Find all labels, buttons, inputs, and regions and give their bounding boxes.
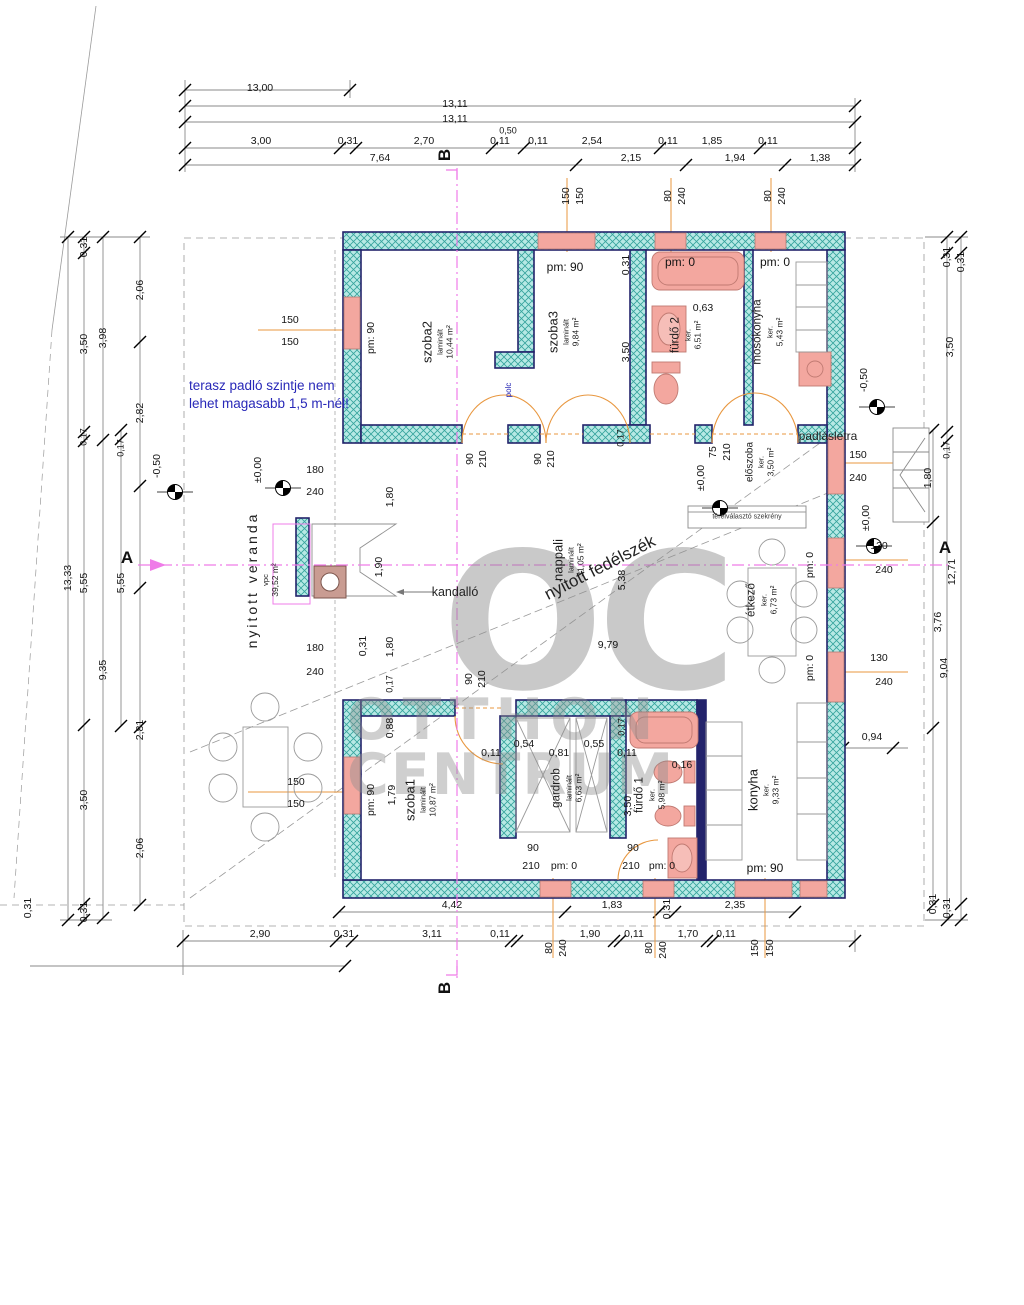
dim-label: 1,85 xyxy=(702,136,722,147)
dim-label: 0,11 xyxy=(624,929,644,940)
dim-label: 5,55 xyxy=(79,573,90,593)
door-label: 90 xyxy=(465,453,476,465)
sill-label: pm: 0 xyxy=(805,552,816,578)
dim-label: 3,00 xyxy=(251,136,271,147)
dim-label: 0,31 xyxy=(79,902,90,922)
dim-label: 0,31 xyxy=(358,636,369,656)
dim-label: 0,17 xyxy=(117,439,126,457)
dim-label: 0,17 xyxy=(80,428,89,446)
dim-label: 2,90 xyxy=(250,929,270,940)
room-label-szoba3: szoba3 laminált 9,84 m² xyxy=(546,311,581,353)
room-label-gardrob: gardrob laminált 6,63 m² xyxy=(551,768,584,808)
room-name: konyha xyxy=(746,769,762,811)
window-label: 150 xyxy=(561,187,572,205)
dim-label: 13,00 xyxy=(247,83,273,94)
room-name: gardrob xyxy=(551,768,565,808)
room-name: fürdő 2 xyxy=(670,317,684,353)
dim-label: 1,70 xyxy=(678,929,698,940)
dim-label: 0,31 xyxy=(334,929,354,940)
floor-plan-page: OC OTTHON CENTRUM terasz padló szintje n… xyxy=(0,0,1024,1305)
room-name: előszoba xyxy=(744,442,756,482)
dim-label: 0,11 xyxy=(617,748,637,759)
room-area: 39,52 m² xyxy=(270,512,280,649)
dim-label: 0,31 xyxy=(621,255,632,275)
bidet-tank xyxy=(684,806,695,826)
dim-label: 2,06 xyxy=(135,280,146,300)
dim-label: ±0,00 xyxy=(861,505,872,531)
dim-label: 13,11 xyxy=(442,114,468,125)
dim-label: 3,76 xyxy=(933,612,944,632)
dim-label: 1,80 xyxy=(385,637,396,657)
room-floor: ker. xyxy=(647,777,656,813)
dim-label: 1,90 xyxy=(580,929,600,940)
room-name: szoba3 xyxy=(546,311,562,353)
window-label: 150 xyxy=(287,799,305,810)
dim-label: 9,79 xyxy=(598,640,618,651)
dim-label: 0,17 xyxy=(618,718,627,736)
room-area: 6,51 m² xyxy=(692,317,702,353)
dim-label: -0,50 xyxy=(859,368,870,392)
dim-label: 1,94 xyxy=(725,153,745,164)
level-label: ±0,00 xyxy=(253,457,264,483)
dim-label: 240 xyxy=(558,939,569,957)
room-name: mosókonyha xyxy=(752,299,766,364)
dim-label: 240 xyxy=(658,941,669,959)
dim-label: 80 xyxy=(544,942,555,954)
dim-label: 3,11 xyxy=(422,929,442,940)
dim-label: 7,64 xyxy=(370,153,390,164)
dim-label: 4,42 xyxy=(442,900,462,911)
toilet-2-bowl xyxy=(654,374,678,404)
dim-label: 150 xyxy=(849,450,867,461)
dim-label: 240 xyxy=(849,473,867,484)
door-label: 210 xyxy=(478,450,489,468)
dim-label: 0,31 xyxy=(956,252,967,272)
dim-label: 9,35 xyxy=(98,660,109,680)
section-marker-b-top: B xyxy=(435,149,455,161)
kitchen-counter-left xyxy=(706,722,742,860)
sill-label: pm: 90 xyxy=(366,784,377,816)
dim-label: 0,31 xyxy=(942,247,953,267)
room-area: 9,84 m² xyxy=(570,311,580,353)
room-area: 31,05 m² xyxy=(575,539,585,581)
window-label: 150 xyxy=(287,777,305,788)
door-label: 210 xyxy=(477,670,488,688)
room-floor: vpc xyxy=(261,512,270,649)
room-label-furdo2: fürdő 2 ker. 6,51 m² xyxy=(670,317,703,353)
veranda-table xyxy=(243,727,288,807)
dim-label: 240 xyxy=(875,565,893,576)
dim-label: 2,81 xyxy=(135,720,146,740)
dim-label: 1,80 xyxy=(385,487,396,507)
dim-label: 1,90 xyxy=(374,557,385,577)
sill-label: pm: 90 xyxy=(747,862,784,874)
room-floor: laminált xyxy=(418,779,427,821)
dim-label: 1,79 xyxy=(387,785,398,805)
dim-label: 2,15 xyxy=(621,153,641,164)
toilet-2-tank xyxy=(652,362,680,373)
washing-machine xyxy=(799,352,831,386)
room-name: nyitott veranda xyxy=(244,512,261,649)
door-label: 90 xyxy=(464,673,475,685)
dim-label: 2,82 xyxy=(135,403,146,423)
dim-label: 2,35 xyxy=(725,900,745,911)
dim-label: 1,83 xyxy=(602,900,622,911)
room-label-szoba2: szoba2 laminált 10,44 m² xyxy=(420,321,455,363)
sill-label: pm: 90 xyxy=(366,322,377,354)
dim-label: 3,50 xyxy=(621,342,632,362)
fireplace-label: kandalló xyxy=(432,585,479,599)
room-area: 9,33 m² xyxy=(770,769,780,811)
dim-label: 0,94 xyxy=(862,732,882,743)
room-floor: laminált xyxy=(566,539,575,581)
door-label: 90 xyxy=(527,843,539,854)
attic-ladder-label: padláslétra xyxy=(799,429,858,443)
room-name: fürdő 1 xyxy=(634,777,648,813)
dim-label: 9,04 xyxy=(939,658,950,678)
divider-cabinet-label: térelválasztó szekrény xyxy=(712,514,781,521)
section-marker-a-left: A xyxy=(121,548,133,568)
dim-label: 0,11 xyxy=(716,929,736,940)
dim-label: 150 xyxy=(750,939,761,957)
opening-label: 240 xyxy=(306,667,324,678)
window-label: 80 xyxy=(763,190,774,202)
dim-label: 0,17 xyxy=(617,429,626,447)
window-label: 150 xyxy=(575,187,586,205)
window-label: 150 xyxy=(281,337,299,348)
room-area: 3,50 m² xyxy=(765,442,775,482)
dim-label: 2,06 xyxy=(135,838,146,858)
section-marker-a-right: A xyxy=(939,538,951,558)
room-floor: laminált xyxy=(561,311,570,353)
dim-label: 2,70 xyxy=(414,136,434,147)
dim-label: 3,50 xyxy=(79,790,90,810)
dim-label: 0,17 xyxy=(386,675,395,693)
door-label: 210 xyxy=(546,450,557,468)
dim-label: 0,11 xyxy=(481,748,501,759)
dim-label: 2,54 xyxy=(582,136,602,147)
room-name: étkező xyxy=(746,583,760,617)
dim-label: 0,11 xyxy=(490,929,510,940)
dim-label: 0,81 xyxy=(549,748,569,759)
room-area: 10,44 m² xyxy=(444,321,454,363)
terrace-note-line1: terasz padló szintje nem xyxy=(189,377,349,395)
room-label-furdo1: fürdő 1 ker. 5,98 m² xyxy=(634,777,667,813)
dim-label: 150 xyxy=(765,939,776,957)
dim-label: 0,11 xyxy=(658,136,678,147)
dim-label: 0,16 xyxy=(672,760,692,771)
dim-label: 0,31 xyxy=(942,898,953,918)
dim-label: 0,54 xyxy=(514,739,534,750)
window-label: 150 xyxy=(281,315,299,326)
room-name: szoba1 xyxy=(403,779,419,821)
room-floor: laminált xyxy=(435,321,444,363)
room-floor: ker. xyxy=(683,317,692,353)
room-floor: ker. xyxy=(756,442,765,482)
room-floor: laminált xyxy=(564,768,573,808)
kitchen-counter-right xyxy=(797,703,827,860)
level-label: ±0,00 xyxy=(696,465,707,491)
room-area: 10,87 m² xyxy=(427,779,437,821)
room-floor: ker. xyxy=(759,583,768,617)
door-label: 210 xyxy=(622,861,640,872)
room-label-veranda: nyitott veranda vpc 39,52 m² xyxy=(244,512,280,649)
dim-label: 13,11 xyxy=(442,99,468,110)
door-label: 210 xyxy=(522,861,540,872)
sill-label: pm: 0 xyxy=(760,256,790,268)
room-label-nappali: nappali laminált 31,05 m² xyxy=(551,539,586,581)
window-label: 240 xyxy=(677,187,688,205)
dim-label: 0,17 xyxy=(943,441,952,459)
room-name: szoba2 xyxy=(420,321,436,363)
sill-label: pm: 0 xyxy=(551,861,577,872)
dim-label: 0,11 xyxy=(528,136,548,147)
room-floor: ker. xyxy=(761,769,770,811)
dim-label: 0,11 xyxy=(490,136,510,147)
sill-label: pm: 0 xyxy=(665,256,695,268)
dim-label: 0,31 xyxy=(79,237,90,257)
dim-label: -0,50 xyxy=(152,454,163,478)
opening-label: 240 xyxy=(306,487,324,498)
dim-label: 0,11 xyxy=(758,136,778,147)
dim-label: 3,50 xyxy=(79,334,90,354)
sill-label: pm: 0 xyxy=(805,655,816,681)
dim-label: 5,55 xyxy=(116,573,127,593)
door-label: 75 xyxy=(708,446,719,458)
door-label: 90 xyxy=(533,453,544,465)
dim-label: 0,55 xyxy=(584,739,604,750)
dim-label: 1,38 xyxy=(810,153,830,164)
room-label-eloszoba: előszoba ker. 3,50 m² xyxy=(744,442,775,482)
room-label-mosokonyha: mosókonyha ker. 5,43 m² xyxy=(752,299,785,364)
door-label: 210 xyxy=(722,443,733,461)
terrace-note: terasz padló szintje nem lehet magasabb … xyxy=(189,377,349,413)
dim-label: 5,38 xyxy=(617,570,628,590)
sill-label: pm: 90 xyxy=(547,261,584,273)
shelf-label: polc xyxy=(505,383,513,398)
window-label: 80 xyxy=(663,190,674,202)
section-marker-b-bottom: B xyxy=(435,982,455,994)
dim-label: 0,31 xyxy=(23,898,34,918)
room-label-szoba1: szoba1 laminált 10,87 m² xyxy=(403,779,438,821)
opening-label: 180 xyxy=(306,465,324,476)
dim-label: 13,33 xyxy=(63,565,74,591)
terrace-note-line2: lehet magasabb 1,5 m-nél! xyxy=(189,395,349,413)
room-area: 6,73 m² xyxy=(768,583,778,617)
room-name: nappali xyxy=(551,539,567,581)
room-label-etkezo: étkező ker. 6,73 m² xyxy=(746,583,779,617)
opening-label: 180 xyxy=(306,643,324,654)
dim-label: 0,31 xyxy=(662,899,673,919)
dim-label: 0,63 xyxy=(693,303,713,314)
dim-label: 130 xyxy=(870,541,888,552)
room-floor: ker. xyxy=(765,299,774,364)
room-label-konyha: konyha ker. 9,33 m² xyxy=(746,769,781,811)
sill-label: pm: 0 xyxy=(649,861,675,872)
window-label: 240 xyxy=(777,187,788,205)
dim-label: 130 xyxy=(870,653,888,664)
room-area: 6,63 m² xyxy=(573,768,583,808)
dim-label: 3,50 xyxy=(945,337,956,357)
room-area: 5,43 m² xyxy=(774,299,784,364)
dim-label: 3,98 xyxy=(98,328,109,348)
dim-label: 3,50 xyxy=(623,796,634,816)
dim-label: 240 xyxy=(875,677,893,688)
door-label: 90 xyxy=(627,843,639,854)
dim-label: 1,80 xyxy=(923,468,934,488)
room-area: 5,98 m² xyxy=(656,777,666,813)
dim-label: 12,71 xyxy=(947,559,958,585)
dim-label: 0,88 xyxy=(385,718,396,738)
dim-label: 80 xyxy=(644,942,655,954)
dim-label: 0,31 xyxy=(338,136,358,147)
dim-label: 0,31 xyxy=(928,894,939,914)
